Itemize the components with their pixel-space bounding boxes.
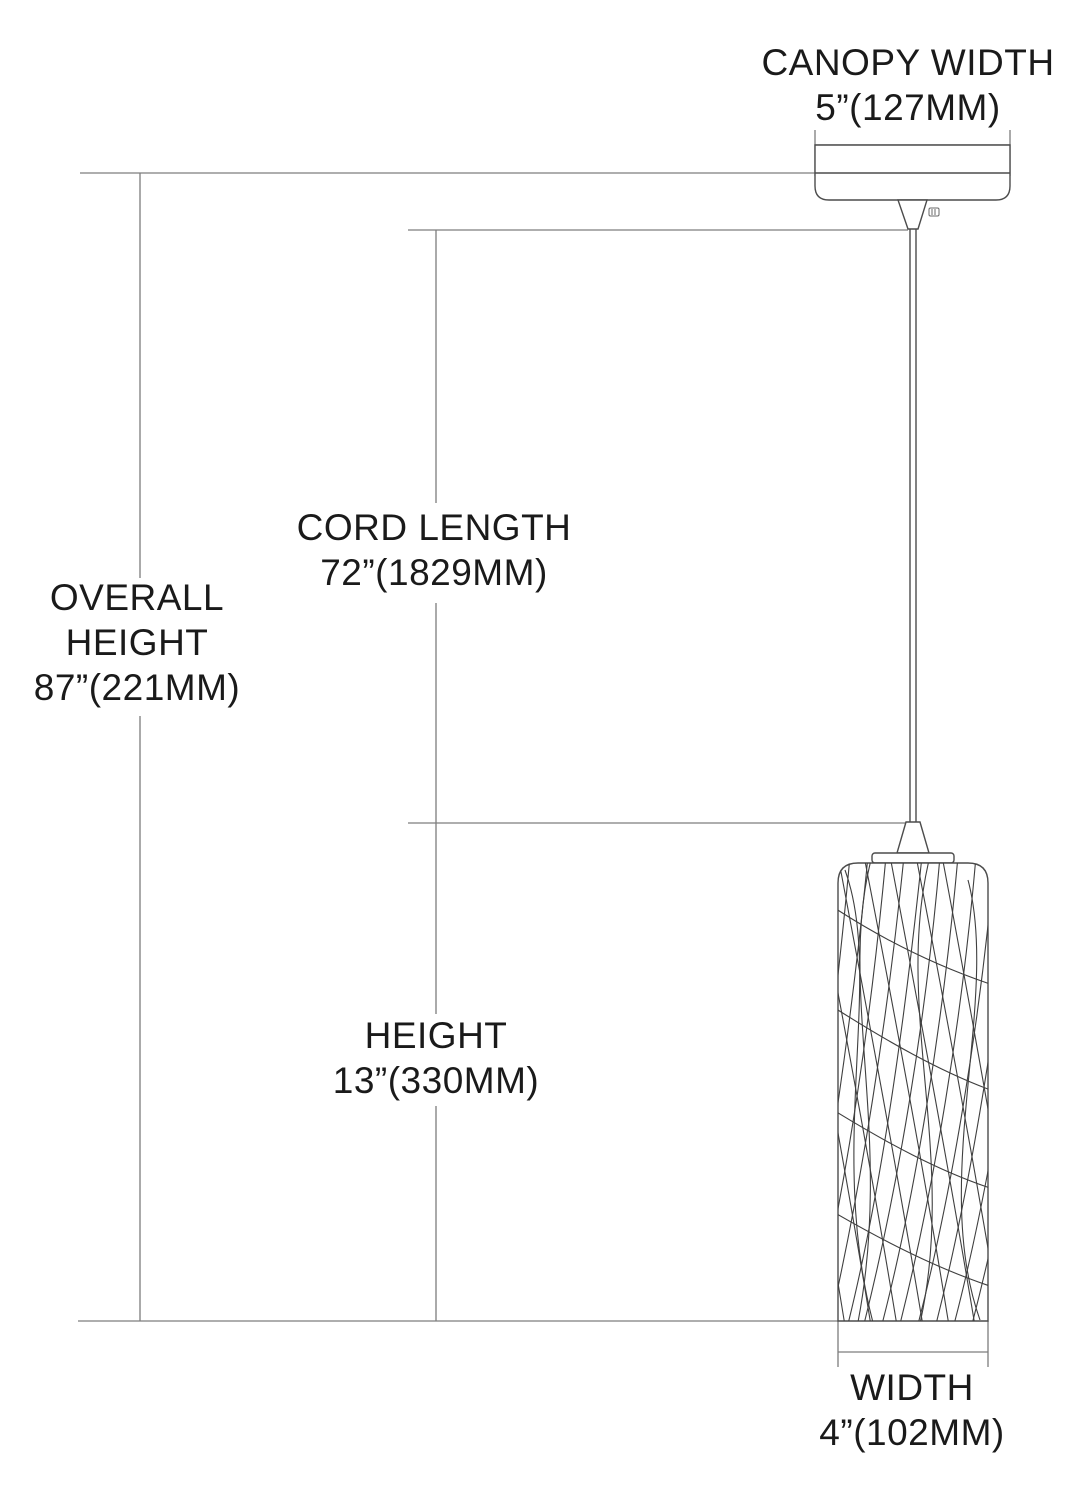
cord-length-title: CORD LENGTH — [297, 505, 572, 550]
height-title: HEIGHT — [333, 1013, 540, 1058]
cord-length-value: 72”(1829MM) — [297, 550, 572, 595]
cord-drawing — [910, 229, 916, 824]
width-label: WIDTH 4”(102MM) — [819, 1365, 1004, 1455]
diagram-linework — [0, 0, 1086, 1500]
width-title: WIDTH — [819, 1365, 1004, 1410]
canopy-width-title: CANOPY WIDTH — [761, 40, 1054, 85]
height-value: 13”(330MM) — [333, 1058, 540, 1103]
shade-width-dimension — [838, 1321, 988, 1367]
width-value: 4”(102MM) — [819, 1410, 1004, 1455]
canopy-cone-drawing — [898, 200, 927, 229]
overall-height-label: OVERALL HEIGHT 87”(221MM) — [34, 575, 241, 710]
overall-height-title-line2: HEIGHT — [34, 620, 241, 665]
height-label: HEIGHT 13”(330MM) — [333, 1013, 540, 1103]
canopy-drawing — [815, 145, 1010, 200]
overall-height-title-line1: OVERALL — [34, 575, 241, 620]
cord-length-label: CORD LENGTH 72”(1829MM) — [297, 505, 572, 595]
overall-height-value: 87”(221MM) — [34, 665, 241, 710]
canopy-width-label: CANOPY WIDTH 5”(127MM) — [761, 40, 1054, 130]
certification-mark-icon — [929, 208, 939, 216]
dimension-diagram: CANOPY WIDTH 5”(127MM) OVERALL HEIGHT 87… — [0, 0, 1086, 1500]
canopy-width-value: 5”(127MM) — [761, 85, 1054, 130]
socket-drawing — [872, 822, 954, 863]
